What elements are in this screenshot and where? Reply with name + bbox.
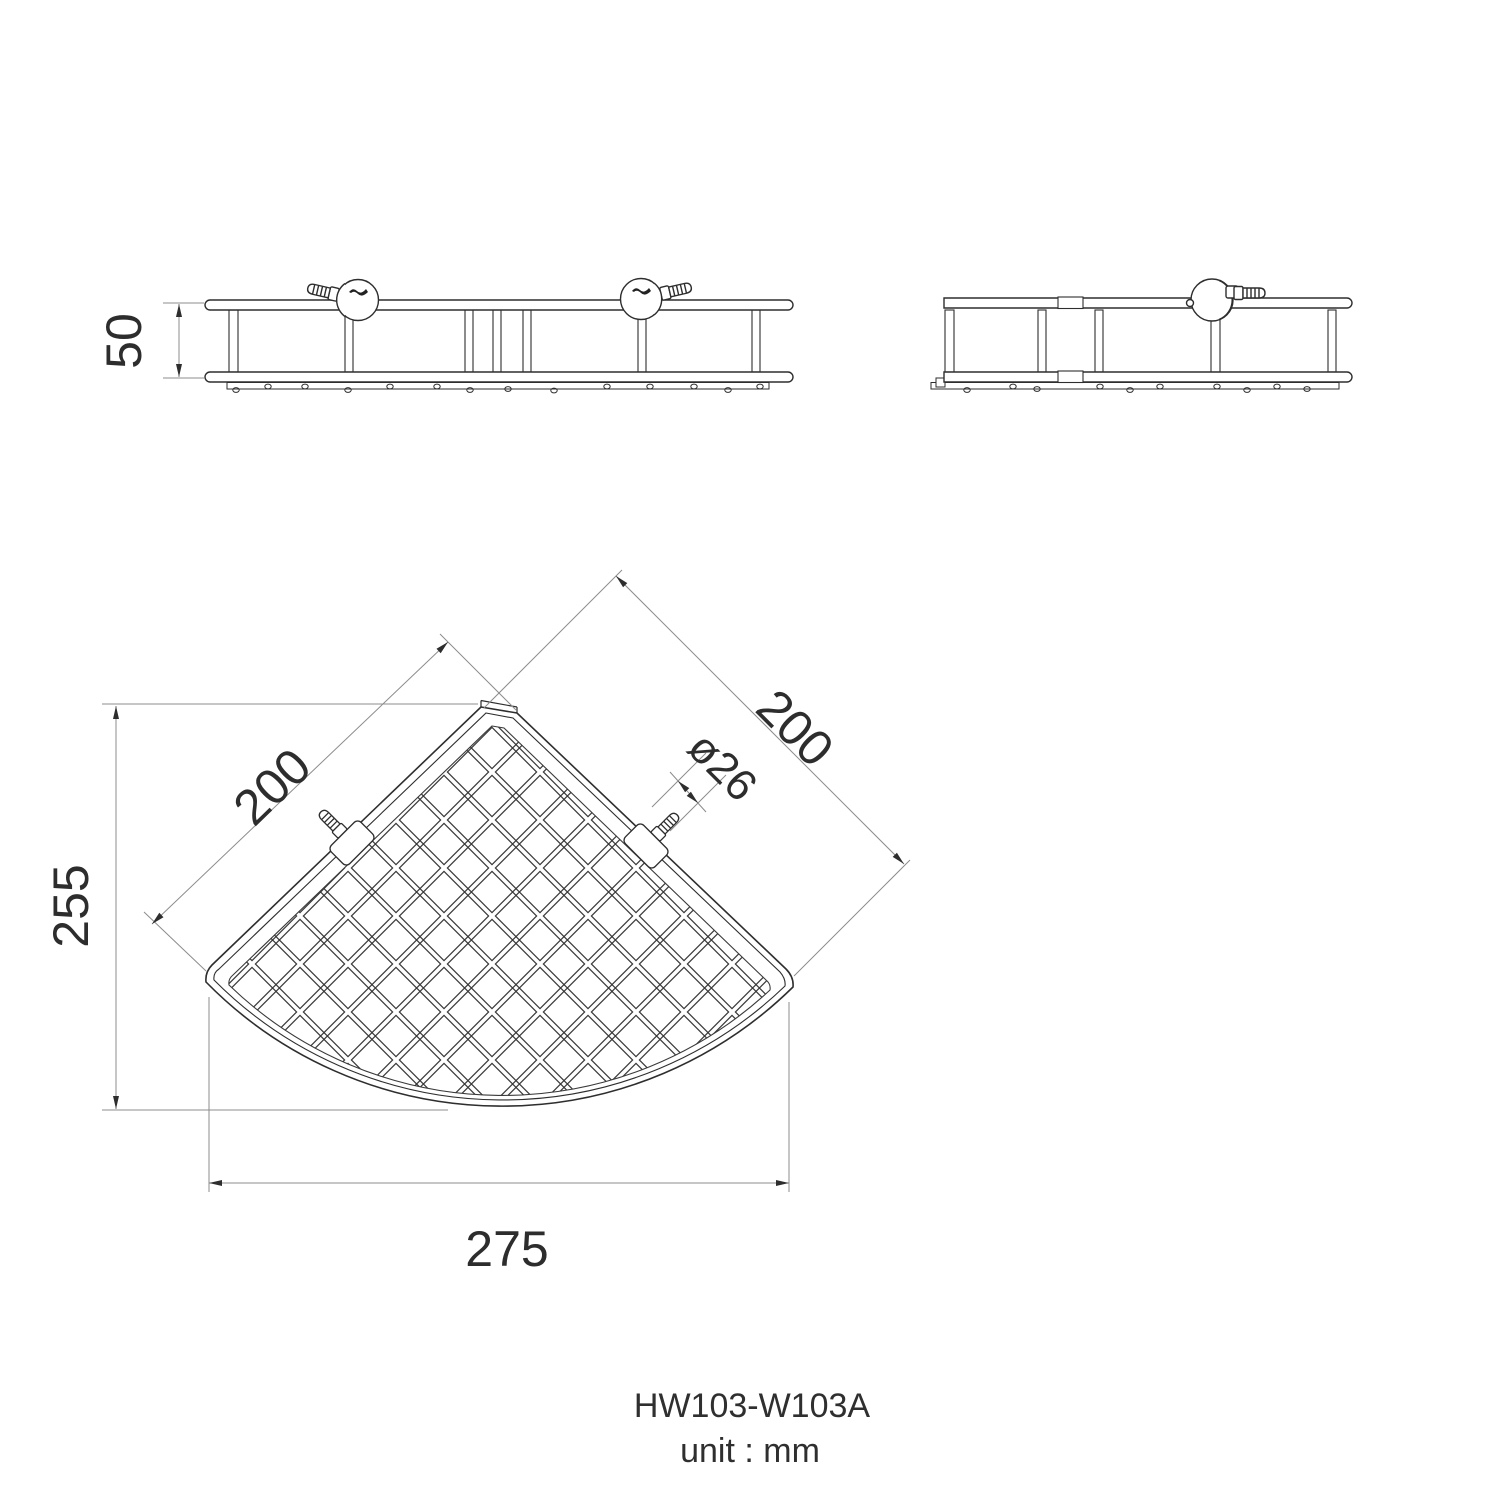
dim-bracket-dia-26: ø26 [652,723,766,831]
side-view [931,279,1352,392]
side-rail-joint-top [1058,297,1083,309]
side-pivot-hole [1187,300,1194,307]
dim-255-label: 255 [43,864,99,947]
front-left-screw [306,282,339,302]
dim-200-right-label: 200 [746,679,845,778]
side-top-rail [944,298,1352,308]
drawing-page: 50 [0,0,1500,1500]
front-top-rail [205,300,793,310]
front-posts [229,310,760,372]
dim-50-label: 50 [96,313,152,369]
dim-height-50: 50 [96,303,204,378]
front-bottom-rail [205,372,793,382]
front-mesh-edge [227,383,769,393]
side-posts [945,310,1336,372]
plan-view: 255 275 200 [43,570,910,1277]
front-view: 50 [96,279,793,393]
product-code: HW103-W103A [634,1387,871,1425]
unit-note: unit : mm [680,1432,820,1470]
dim-275-label: 275 [465,1221,548,1277]
dim-200-left-label: 200 [223,738,322,836]
technical-drawing: 50 [0,0,1500,1500]
front-right-bracket [621,279,693,320]
side-bottom-rail [944,372,1352,382]
front-right-screw [660,281,693,301]
side-rail-joint-bottom [1058,371,1083,383]
side-screw [1234,287,1265,300]
